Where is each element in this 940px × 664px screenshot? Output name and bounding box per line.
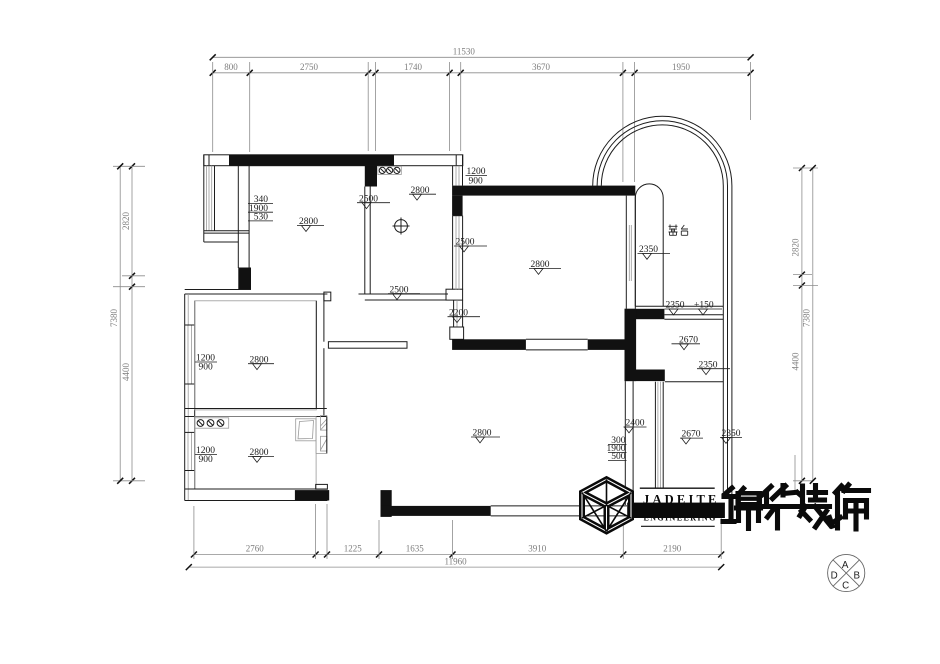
- svg-text:3910: 3910: [528, 544, 547, 554]
- svg-text:D: D: [831, 571, 838, 582]
- svg-text:2820: 2820: [121, 212, 131, 231]
- svg-text:7380: 7380: [802, 309, 812, 328]
- svg-text:2750: 2750: [300, 62, 319, 72]
- svg-text:4400: 4400: [791, 352, 801, 371]
- svg-text:1225: 1225: [344, 544, 363, 554]
- svg-text:A: A: [842, 560, 849, 571]
- svg-text:11530: 11530: [453, 47, 476, 57]
- svg-text:900: 900: [199, 363, 214, 373]
- svg-text:3670: 3670: [532, 62, 551, 72]
- svg-text:800: 800: [224, 62, 238, 72]
- svg-text:1740: 1740: [404, 62, 423, 72]
- svg-text:1950: 1950: [672, 62, 691, 72]
- svg-text:7380: 7380: [109, 309, 119, 328]
- svg-text:1635: 1635: [406, 544, 425, 554]
- svg-text:B: B: [854, 570, 861, 581]
- svg-text:2190: 2190: [663, 544, 682, 554]
- svg-text:4400: 4400: [121, 363, 131, 382]
- svg-text:11960: 11960: [445, 556, 468, 566]
- svg-text:2760: 2760: [246, 544, 265, 554]
- svg-text:900: 900: [469, 177, 484, 187]
- svg-text:C: C: [842, 581, 849, 592]
- svg-text:900: 900: [199, 455, 214, 465]
- svg-text:2820: 2820: [791, 238, 801, 257]
